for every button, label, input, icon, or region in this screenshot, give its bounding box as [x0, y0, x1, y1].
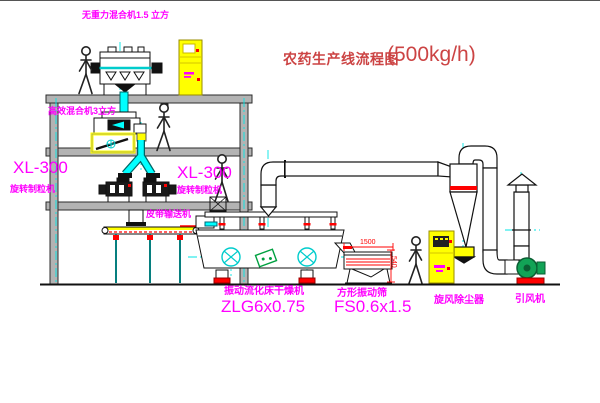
- granulator-left: [99, 178, 132, 202]
- granulator-left-model-label: XL-300: [13, 159, 68, 176]
- diagram-title-capacity: (500kg/h): [387, 44, 476, 65]
- dryer-name-label: 振动流化床干燥机: [224, 287, 304, 297]
- high-efficiency-mixer-label: 高效混合机3立方: [48, 107, 116, 116]
- worker-4: [409, 237, 422, 284]
- granulator-left-name-label: 旋转制粒机: [10, 185, 55, 194]
- cyclone-separator: [450, 146, 507, 274]
- control-cabinet-ground: [429, 231, 454, 283]
- flow-diagram-screenshot: 无重力混合机1.5 立方 农药生产线流程图 (500kg/h) 高效混合机3立方…: [0, 0, 600, 403]
- exhaust-duct: [261, 160, 452, 216]
- cyclone-label: 旋风除尘器: [434, 296, 484, 306]
- dryer-model-label: ZLG6x0.75: [221, 298, 305, 315]
- worker-2: [157, 104, 170, 151]
- belt-conveyor-label: 皮带输送机: [146, 210, 191, 219]
- fluid-bed-dryer: [196, 212, 344, 283]
- granulator-mid-model-label: XL-300: [177, 164, 232, 181]
- gravity-free-mixer-label: 无重力混合机1.5 立方: [82, 11, 169, 20]
- belt-conveyor: [102, 210, 199, 283]
- worker-1: [79, 47, 92, 94]
- gravity-free-mixer: [91, 47, 162, 114]
- granulator-right: [143, 178, 176, 202]
- control-cabinet-top: [179, 40, 202, 95]
- fan-label: 引风机: [515, 295, 545, 305]
- induced-draft-fan: [505, 258, 545, 284]
- sieve-height-dimension: 540: [390, 256, 397, 268]
- diagram-title: 农药生产线流程图: [283, 52, 399, 66]
- sieve-model-label: FS0.6x1.5: [334, 298, 412, 315]
- sieve-length-dimension: 1500: [360, 239, 376, 246]
- exhaust-stack: [508, 174, 536, 260]
- granulator-mid-name-label: 旋转制粒机: [177, 186, 222, 195]
